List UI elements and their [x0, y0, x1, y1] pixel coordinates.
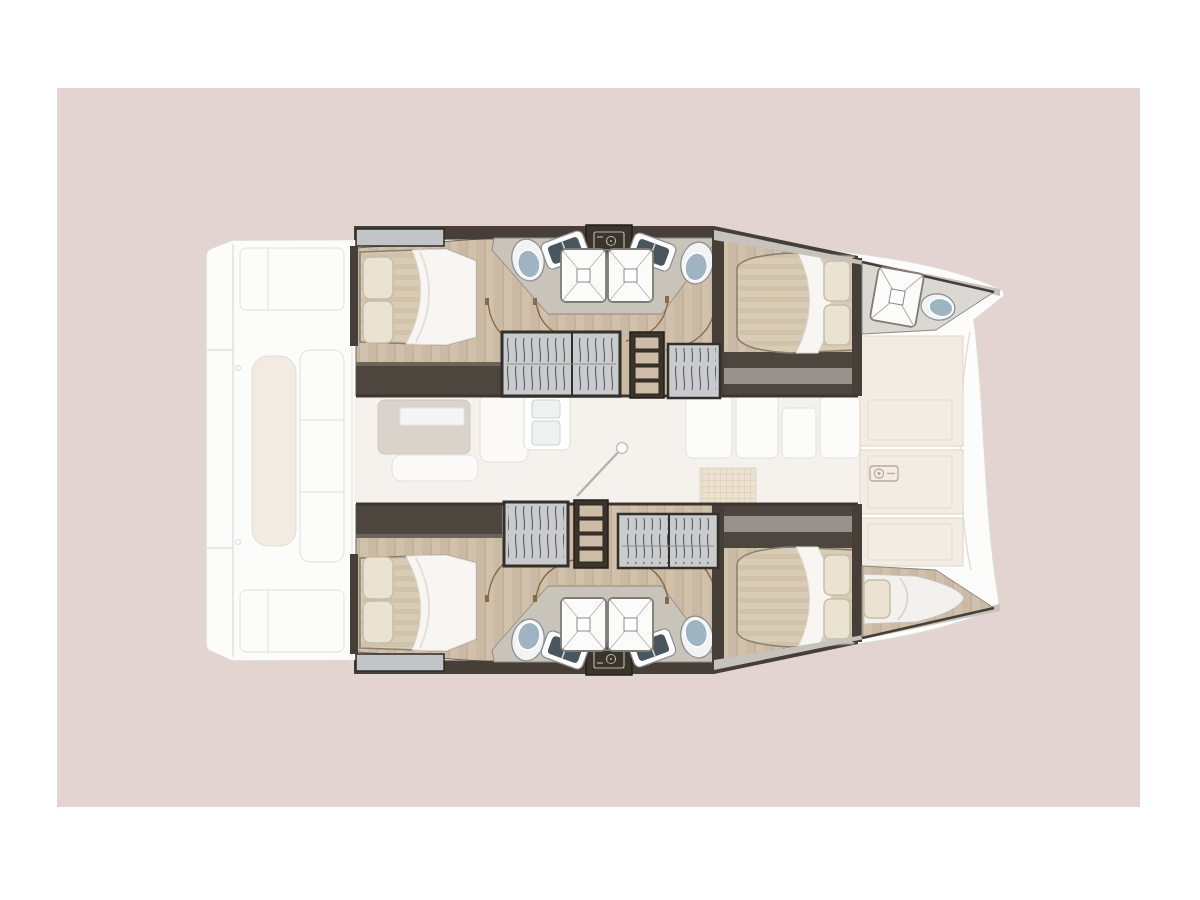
starboard-stairs [574, 500, 608, 568]
catamaran-floorplan-page [0, 0, 1200, 900]
salon [354, 392, 862, 506]
salon-table [400, 408, 464, 425]
aft-cockpit [236, 248, 345, 652]
bow-shower [870, 266, 925, 327]
floorplan-svg [0, 0, 1200, 900]
galley-sink [524, 394, 570, 450]
salon-cabinets [686, 392, 860, 458]
cockpit-bench [252, 356, 296, 546]
cockpit-seats [300, 350, 344, 562]
cockpit-deck-panel [240, 590, 344, 652]
bow-berth-cushion [864, 580, 890, 618]
salon-bench [392, 455, 478, 481]
cockpit-deck-panel [240, 248, 344, 310]
foredeck-lockers [860, 336, 963, 566]
galley-counter [480, 392, 528, 462]
port-stairs [630, 332, 664, 398]
nav-chart-table [700, 468, 756, 506]
